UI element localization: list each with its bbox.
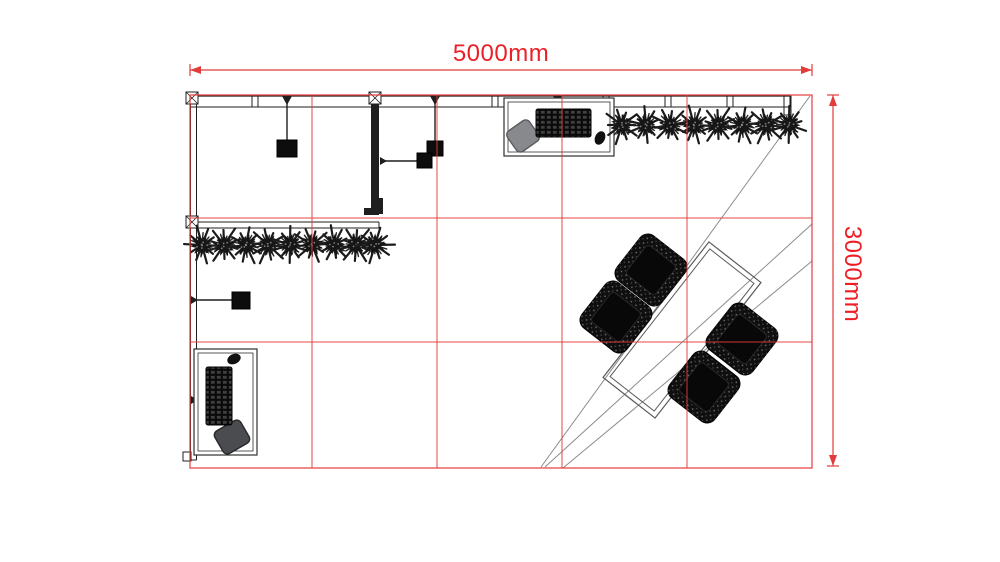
spotlight-head [232, 292, 250, 309]
wall-foot [364, 208, 371, 215]
spotlight-head [277, 140, 297, 157]
workstation-desk [194, 349, 257, 456]
dimension-arrow [829, 455, 837, 466]
keyboard [536, 109, 591, 137]
spotlight-head [417, 153, 432, 168]
dimension-arrow [801, 66, 812, 74]
workstation-desk [504, 98, 614, 156]
dimension-height-label: 3000mm [838, 226, 866, 322]
dimension-width-label: 5000mm [401, 40, 601, 68]
keyboard [206, 367, 232, 425]
graphic-wall [371, 96, 379, 215]
wall-foot [379, 198, 383, 214]
floorplan-page: 5000mm 3000mm [0, 0, 1000, 562]
dimension-arrow [190, 66, 201, 74]
dimension-arrow [829, 95, 837, 106]
